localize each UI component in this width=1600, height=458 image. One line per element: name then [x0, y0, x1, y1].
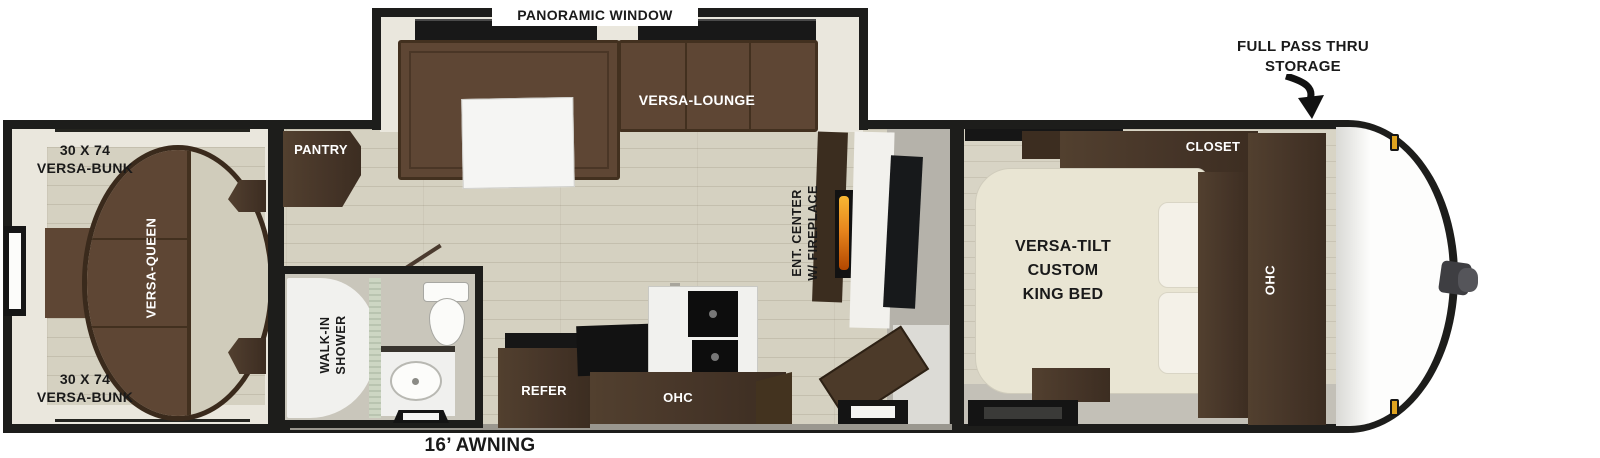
- trailer-body: 30 X 74 VERSA-BUNK 30 X 74 VERSA-BUNK VE…: [3, 120, 1345, 433]
- bunk-rail-bottom: [55, 419, 250, 422]
- sink-drain: [412, 378, 419, 385]
- awning-label: 16’ AWNING: [402, 434, 558, 458]
- wall-divider: [950, 129, 964, 424]
- cooktop: [576, 324, 650, 376]
- bunk-bottom-label: 30 X 74 VERSA-BUNK: [20, 371, 150, 406]
- marker-light: [1390, 399, 1399, 416]
- sink-basin: [692, 340, 738, 374]
- king-bed-label: VERSA-TILT CUSTOM KING BED: [978, 235, 1148, 307]
- bunk-rail-top: [55, 129, 250, 132]
- bath-mat: [393, 410, 449, 423]
- pantry-label: PANTRY: [285, 142, 357, 158]
- lounge-slide: VERSA-LOUNGE: [372, 8, 868, 130]
- hitch-coupler: [1458, 268, 1478, 292]
- bed-foot-bench: [1032, 368, 1110, 402]
- closet-label: CLOSET: [1168, 139, 1258, 155]
- pass-thru-storage-label: FULL PASS THRU STORAGE: [1203, 37, 1403, 78]
- front-cap-body: [1336, 127, 1450, 426]
- shower-glass: [369, 278, 381, 418]
- ohc-bedroom-cabinet: [1248, 133, 1326, 425]
- lounge-table: [461, 97, 575, 189]
- bunk-top-label: 30 X 74 VERSA-BUNK: [20, 142, 150, 177]
- entry-step-mat: [838, 400, 908, 424]
- bathroom: WALK-IN SHOWER: [277, 266, 483, 428]
- versa-lounge-sofa: [618, 40, 818, 132]
- panoramic-window-label: PANORAMIC WINDOW: [492, 6, 698, 26]
- pass-thru-arrow: [1270, 74, 1330, 122]
- marker-light: [1390, 134, 1399, 151]
- rear-bedroom: 30 X 74 VERSA-BUNK 30 X 74 VERSA-BUNK VE…: [12, 129, 268, 424]
- fireplace-flame: [839, 196, 849, 270]
- rear-window: [4, 226, 26, 316]
- floorplan: 30 X 74 VERSA-BUNK 30 X 74 VERSA-BUNK VE…: [0, 0, 1600, 458]
- refer-label: REFER: [498, 383, 590, 399]
- ohc-kitchen-label: OHC: [640, 390, 716, 406]
- sink-basin: [688, 291, 738, 337]
- bedroom-entry-mat: [968, 400, 1078, 426]
- headboard-cabinet: [1198, 172, 1250, 418]
- versa-lounge-label: VERSA-LOUNGE: [622, 92, 772, 110]
